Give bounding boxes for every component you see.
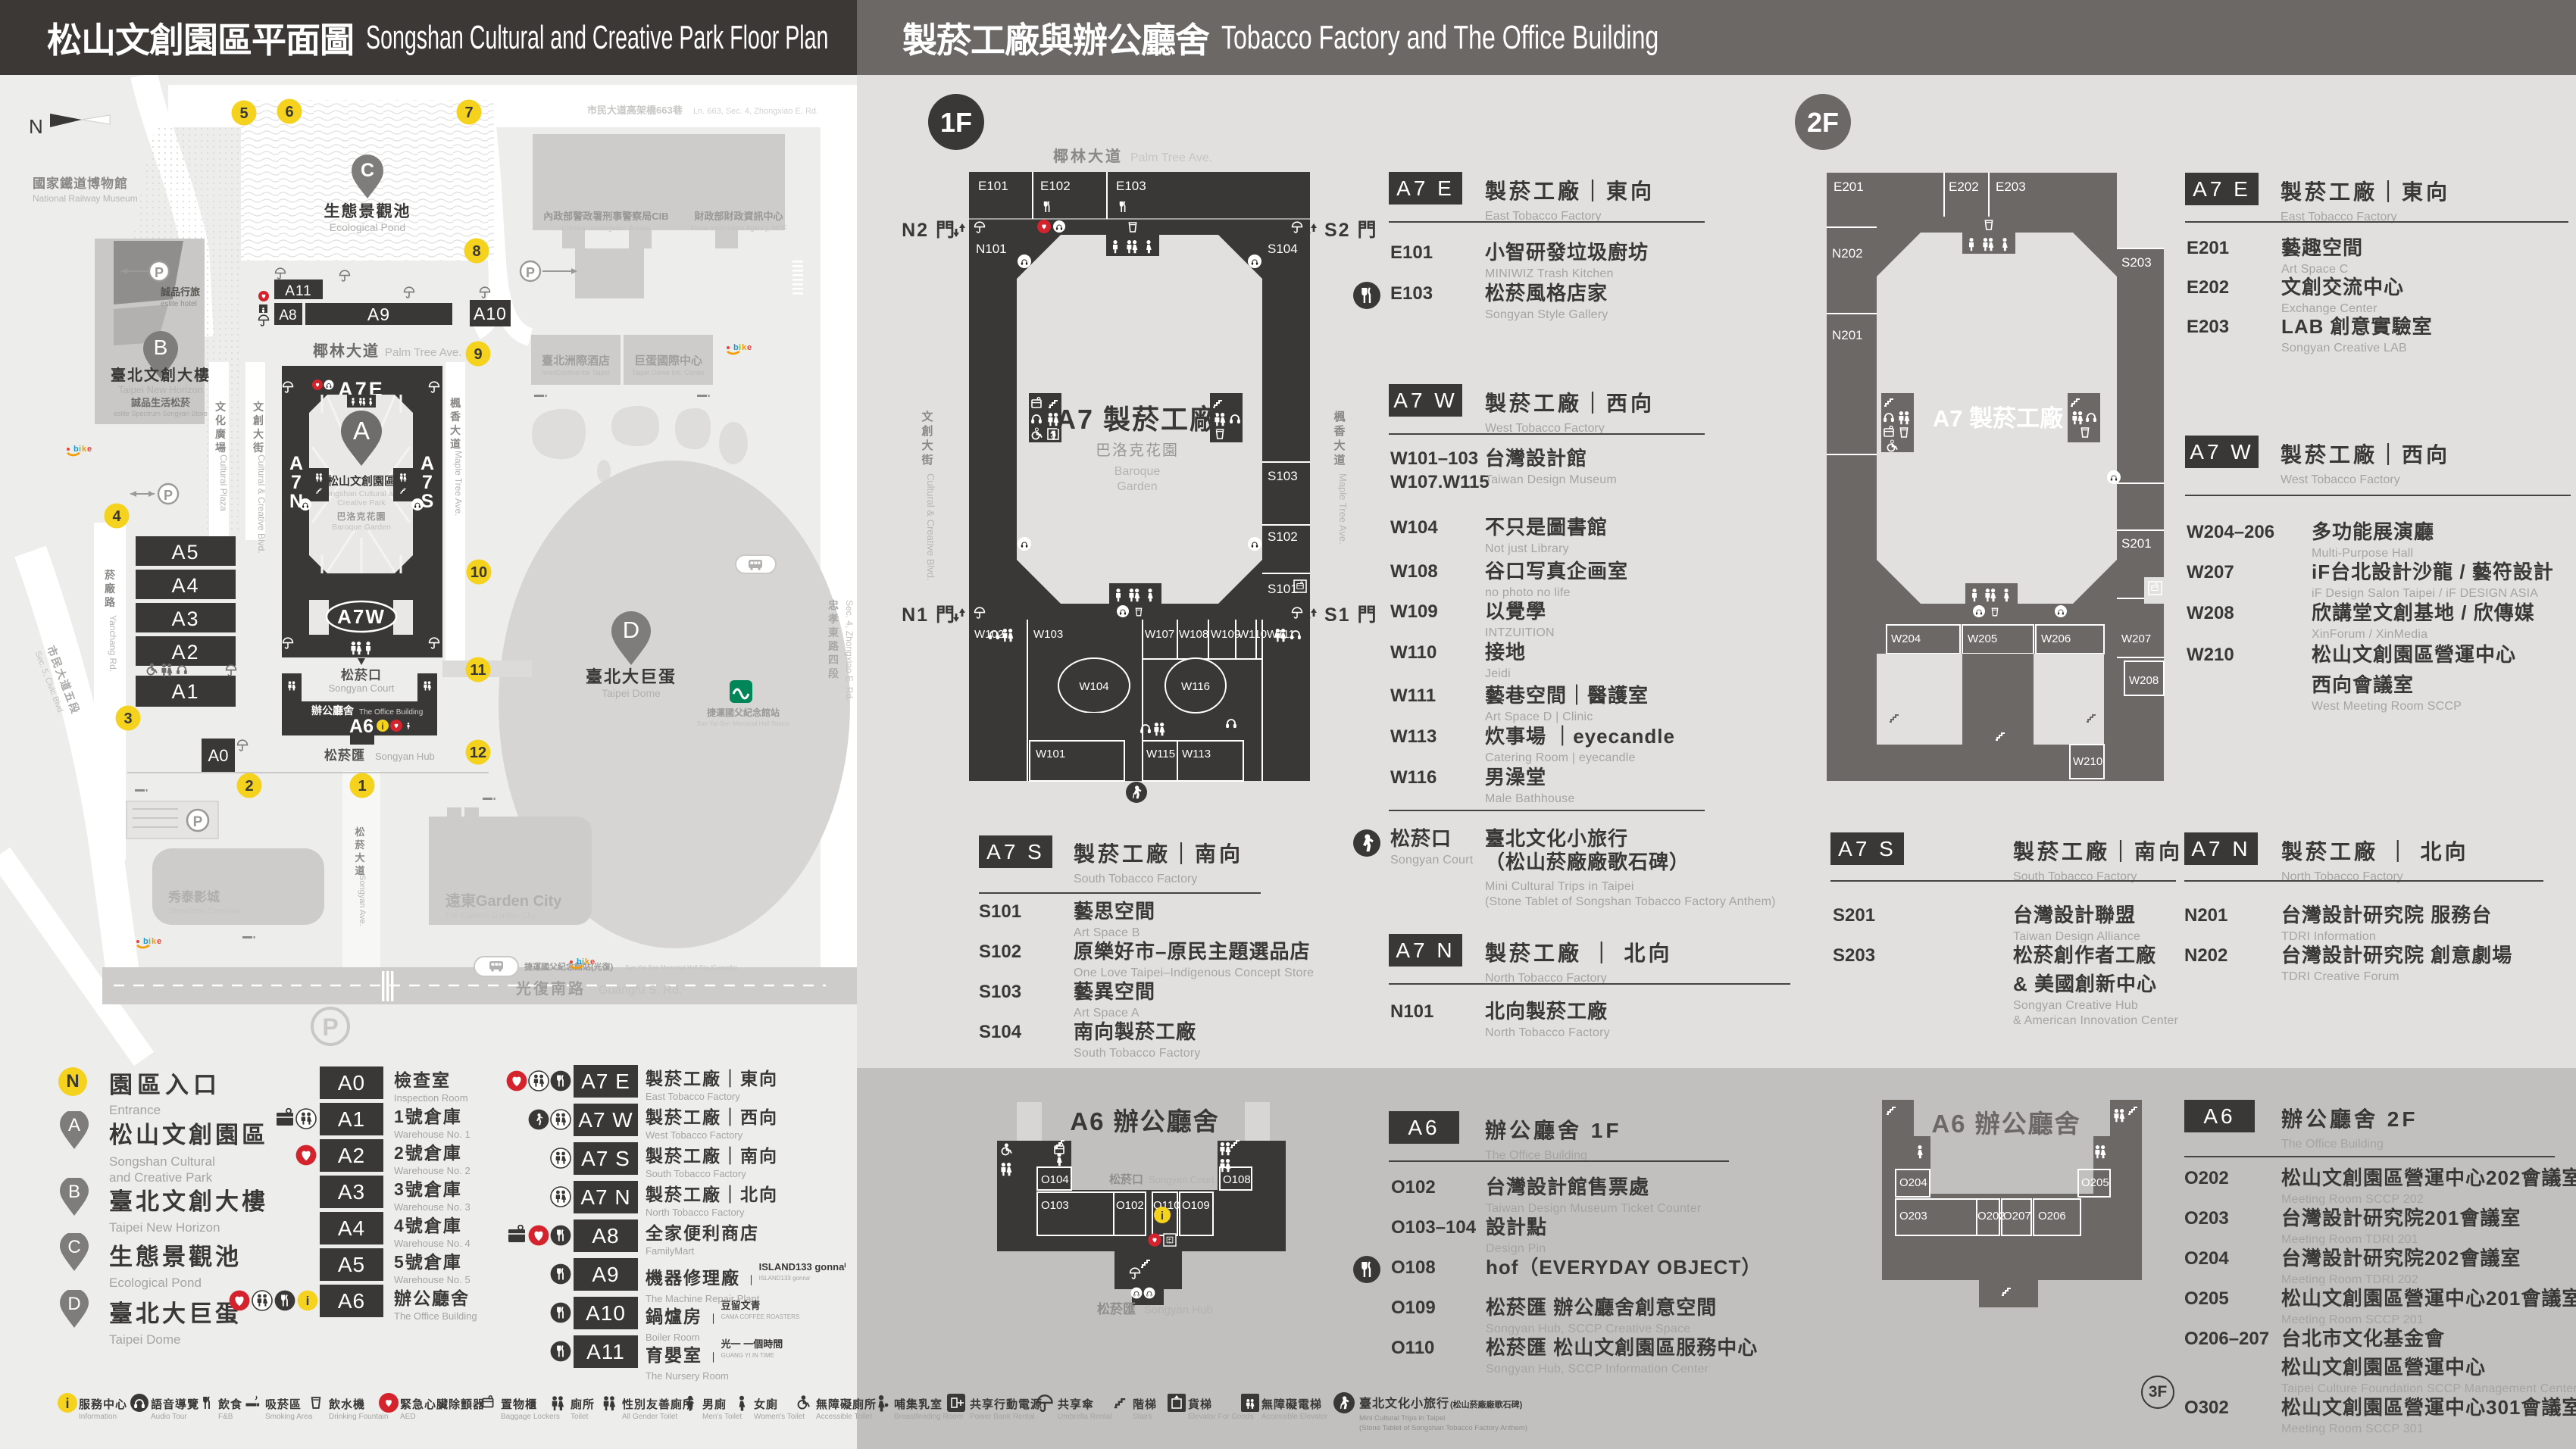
- svg-text:O206: O206: [2038, 1210, 2066, 1223]
- svg-text:b: b: [143, 937, 148, 946]
- svg-text:9: 9: [474, 346, 482, 363]
- svg-text:Songyan Hub: Songyan Hub: [1144, 1304, 1213, 1316]
- svg-text:i: i: [79, 445, 81, 454]
- svg-text:Songyan Court: Songyan Court: [1149, 1174, 1215, 1185]
- svg-text:孝: 孝: [827, 613, 839, 625]
- svg-text:Creative Park: Creative Park: [337, 498, 386, 507]
- svg-text:置物櫃: 置物櫃: [501, 1397, 537, 1411]
- svg-text:菸: 菸: [355, 839, 365, 851]
- svg-text:i: i: [65, 1396, 69, 1411]
- svg-text:E101: E101: [978, 179, 1008, 193]
- svg-text:Baroque Garden: Baroque Garden: [332, 523, 391, 532]
- svg-text:W101: W101: [1036, 748, 1065, 760]
- svg-text:(松山菸廠廠歌石碑): (松山菸廠廠歌石碑): [1450, 1399, 1523, 1410]
- svg-text:Accessible Elevator: Accessible Elevator: [1261, 1413, 1328, 1421]
- svg-text:Sun Yat-Sen Memorial Hall Sta.: Sun Yat-Sen Memorial Hall Sta.(Guangfu): [625, 964, 738, 971]
- svg-text:Drinking Fountain: Drinking Fountain: [329, 1413, 388, 1421]
- svg-text:A4: A4: [171, 574, 199, 597]
- svg-text:S103: S103: [1268, 469, 1298, 483]
- svg-text:B: B: [154, 336, 168, 359]
- svg-text:S2 門: S2 門: [1324, 220, 1378, 241]
- svg-text:Men's Toilet: Men's Toilet: [702, 1413, 742, 1421]
- svg-text:A2: A2: [171, 641, 199, 664]
- svg-text:Elevator For Goods: Elevator For Goods: [1188, 1413, 1254, 1421]
- svg-text:S104: S104: [1268, 242, 1298, 256]
- svg-text:Maple Tree Ave.: Maple Tree Ave.: [1337, 473, 1349, 545]
- svg-text:共享行動電源: 共享行動電源: [970, 1397, 1043, 1411]
- svg-text:i: i: [148, 937, 151, 946]
- svg-text:臺北洲際酒店: 臺北洲際酒店: [542, 354, 610, 367]
- svg-text:誠品行旅: 誠品行旅: [161, 286, 200, 298]
- svg-text:3: 3: [123, 710, 132, 727]
- svg-text:A: A: [289, 453, 303, 474]
- svg-text:Umbrella Rental: Umbrella Rental: [1058, 1413, 1112, 1421]
- svg-text:A6 辦公廳舍: A6 辦公廳舍: [1931, 1110, 2080, 1138]
- svg-text:大: 大: [921, 439, 933, 452]
- svg-text:8: 8: [472, 243, 480, 260]
- svg-text:楓: 楓: [450, 397, 461, 409]
- svg-text:E201: E201: [1834, 180, 1864, 194]
- svg-text:W115: W115: [1146, 748, 1175, 760]
- svg-text:A7W: A7W: [337, 605, 386, 628]
- svg-text:5: 5: [239, 105, 248, 122]
- svg-text:P: P: [164, 488, 173, 503]
- svg-text:N201: N201: [1832, 328, 1863, 342]
- svg-text:大: 大: [253, 428, 264, 440]
- svg-text:大: 大: [355, 852, 364, 863]
- svg-text:i: i: [306, 1294, 310, 1308]
- svg-text:N: N: [29, 115, 43, 138]
- svg-text:S201: S201: [2121, 536, 2152, 551]
- svg-text:E103: E103: [1116, 179, 1146, 193]
- svg-text:文: 文: [215, 401, 227, 413]
- svg-text:W210: W210: [2073, 755, 2102, 768]
- svg-text:12: 12: [470, 745, 486, 761]
- svg-text:A3: A3: [171, 607, 199, 630]
- svg-text:辦公廳舍: 辦公廳舍: [311, 704, 355, 717]
- svg-text:W107: W107: [1145, 628, 1174, 641]
- svg-text:Taipei New Horizon: Taipei New Horizon: [118, 384, 203, 395]
- svg-text:市民大道高架橋663巷: 市民大道高架橋663巷: [587, 105, 683, 116]
- svg-text:AED: AED: [400, 1413, 416, 1421]
- svg-text:Showtime Cinemas: Showtime Cinemas: [168, 907, 240, 916]
- svg-text:N1 門: N1 門: [902, 604, 956, 626]
- svg-text:O102: O102: [1116, 1199, 1144, 1212]
- svg-text:InterContinental Taipei: InterContinental Taipei: [542, 369, 609, 376]
- svg-text:東: 東: [828, 626, 839, 639]
- svg-text:Yanchang Rd.: Yanchang Rd.: [108, 615, 118, 672]
- svg-text:文: 文: [921, 410, 933, 423]
- svg-text:路: 路: [105, 596, 116, 608]
- svg-text:椰林大道: 椰林大道: [313, 342, 380, 360]
- svg-text:A7 製菸工廠: A7 製菸工廠: [1933, 405, 2063, 432]
- svg-text:Palm Tree Ave.: Palm Tree Ave.: [385, 346, 461, 359]
- svg-text:Toilet: Toilet: [571, 1413, 589, 1421]
- svg-text:楓: 楓: [1333, 410, 1346, 423]
- svg-text:Songyan Court: Songyan Court: [329, 682, 395, 694]
- svg-text:O203: O203: [1899, 1210, 1927, 1223]
- svg-text:文: 文: [253, 401, 264, 413]
- svg-text:女廁: 女廁: [754, 1397, 778, 1411]
- svg-text:A: A: [68, 1115, 80, 1135]
- svg-text:2: 2: [245, 778, 253, 795]
- svg-text:遠東Garden City: 遠東Garden City: [445, 892, 562, 910]
- svg-text:O205: O205: [2081, 1176, 2109, 1189]
- svg-text:捷運國父紀念館站: 捷運國父紀念館站: [707, 707, 780, 718]
- svg-text:路: 路: [828, 640, 839, 652]
- svg-text:4: 4: [112, 508, 121, 525]
- svg-text:(Stone Tablet of Songshan Toba: (Stone Tablet of Songshan Tobacco Factor…: [1359, 1424, 1527, 1432]
- svg-text:P: P: [193, 814, 203, 830]
- svg-text:Smoking Area: Smoking Area: [265, 1413, 313, 1421]
- svg-text:7: 7: [464, 105, 473, 121]
- svg-text:A: A: [420, 453, 434, 474]
- svg-text:W104: W104: [1079, 680, 1108, 693]
- svg-text:巨蛋國際中心: 巨蛋國際中心: [634, 354, 702, 367]
- svg-text:W206: W206: [2041, 632, 2071, 645]
- svg-text:飲食: 飲食: [217, 1397, 242, 1411]
- svg-text:National Railway Museum: National Railway Museum: [33, 193, 138, 204]
- svg-text:道: 道: [1333, 453, 1345, 467]
- svg-text:W103: W103: [1033, 628, 1063, 641]
- svg-text:S203: S203: [2121, 255, 2152, 270]
- svg-text:1F: 1F: [940, 107, 972, 138]
- svg-text:創: 創: [921, 424, 933, 438]
- svg-text:松山文創園區: 松山文創園區: [327, 474, 395, 488]
- svg-text:Palm Tree Ave.: Palm Tree Ave.: [1130, 151, 1212, 164]
- svg-text:Women's Toilet: Women's Toilet: [754, 1413, 805, 1421]
- svg-text:All Gender Toilet: All Gender Toilet: [622, 1413, 677, 1421]
- svg-text:光復南路: 光復南路: [515, 979, 586, 998]
- svg-text:P: P: [322, 1013, 338, 1041]
- svg-text:內政部警政署刑事警察局CIB: 內政部警政署刑事警察局CIB: [543, 211, 668, 222]
- svg-text:松菸口: 松菸口: [1109, 1173, 1143, 1186]
- svg-text:男廁: 男廁: [702, 1397, 727, 1411]
- svg-text:A1: A1: [171, 680, 199, 703]
- svg-text:松: 松: [355, 826, 364, 838]
- svg-text:巴洛克花園: 巴洛克花園: [1096, 442, 1179, 459]
- svg-text:b: b: [733, 343, 739, 352]
- svg-text:階梯: 階梯: [1133, 1397, 1157, 1411]
- svg-text:Songyan Ave.: Songyan Ave.: [358, 875, 367, 926]
- svg-text:7: 7: [291, 472, 302, 493]
- svg-text:2F: 2F: [1807, 107, 1839, 138]
- svg-text:忠: 忠: [828, 599, 839, 611]
- svg-text:O104: O104: [1041, 1173, 1069, 1186]
- svg-text:W108: W108: [1179, 628, 1208, 641]
- svg-text:Songshan Cultural and: Songshan Cultural and: [321, 489, 402, 498]
- svg-text:財政部財政資訊中心: 財政部財政資訊中心: [693, 211, 783, 222]
- svg-text:eslite hotel: eslite hotel: [161, 300, 197, 308]
- svg-text:緊急心臟除顫器: 緊急心臟除顫器: [400, 1397, 485, 1411]
- svg-text:Power Bank Rental: Power Bank Rental: [970, 1413, 1035, 1421]
- svg-text:A10: A10: [474, 304, 507, 323]
- svg-text:四: 四: [828, 654, 839, 666]
- svg-text:O207: O207: [2003, 1210, 2031, 1223]
- svg-text:Baggage Lockers: Baggage Lockers: [501, 1413, 560, 1421]
- svg-text:F&B: F&B: [218, 1413, 233, 1421]
- svg-text:S1 門: S1 門: [1324, 604, 1378, 626]
- svg-text:6: 6: [285, 104, 293, 120]
- svg-text:廁所: 廁所: [571, 1397, 595, 1411]
- svg-text:街: 街: [252, 442, 264, 454]
- svg-text:10: 10: [470, 564, 487, 581]
- svg-text:O204: O204: [1899, 1176, 1927, 1189]
- svg-text:大: 大: [1333, 439, 1345, 452]
- svg-text:W110: W110: [1238, 628, 1267, 641]
- svg-text:香: 香: [1333, 424, 1345, 438]
- svg-text:巴洛克花園: 巴洛克花園: [336, 511, 386, 522]
- svg-text:D: D: [623, 617, 639, 643]
- svg-text:Fiscal Information Agency, MOF: Fiscal Information Agency, MOF: [690, 224, 787, 232]
- svg-text:共享傘: 共享傘: [1058, 1397, 1094, 1411]
- svg-text:Taipei Dome: Taipei Dome: [602, 687, 661, 699]
- svg-text:W207: W207: [2121, 632, 2151, 645]
- svg-text:W109: W109: [1211, 628, 1240, 641]
- svg-text:P: P: [526, 265, 535, 280]
- svg-text:Audio Tour: Audio Tour: [151, 1413, 187, 1421]
- svg-text:場: 場: [215, 442, 226, 454]
- svg-text:菸: 菸: [105, 569, 116, 581]
- svg-text:e: e: [747, 343, 752, 352]
- svg-text:N2 門: N2 門: [902, 220, 956, 241]
- svg-text:S: S: [421, 491, 434, 512]
- svg-text:Baroque: Baroque: [1114, 465, 1161, 478]
- svg-text:貨梯: 貨梯: [1188, 1397, 1212, 1411]
- svg-text:臺北大巨蛋: 臺北大巨蛋: [586, 667, 677, 686]
- svg-text:Maple Tree Ave.: Maple Tree Ave.: [453, 451, 464, 517]
- svg-text:段: 段: [828, 667, 839, 679]
- svg-text:松菸匯: 松菸匯: [324, 748, 365, 763]
- svg-text:廠: 廠: [105, 582, 116, 595]
- svg-text:k: k: [585, 957, 590, 967]
- svg-text:E102: E102: [1040, 179, 1071, 193]
- svg-text:A8: A8: [279, 308, 296, 323]
- svg-text:A6 辦公廳舍: A6 辦公廳舍: [1070, 1107, 1219, 1135]
- svg-text:E203: E203: [1996, 180, 2026, 194]
- svg-text:k: k: [742, 343, 747, 352]
- svg-text:W208: W208: [2129, 674, 2159, 687]
- svg-text:A7 製菸工廠: A7 製菸工廠: [1056, 404, 1218, 435]
- svg-text:W113: W113: [1182, 748, 1211, 760]
- svg-text:服務中心: 服務中心: [79, 1397, 127, 1411]
- svg-text:香: 香: [449, 411, 461, 423]
- svg-text:性別友善廁所: 性別友善廁所: [622, 1397, 695, 1411]
- svg-text:N101: N101: [976, 242, 1007, 256]
- svg-text:Garden: Garden: [1117, 480, 1157, 493]
- svg-text:1: 1: [358, 778, 366, 795]
- svg-text:A6: A6: [349, 716, 374, 737]
- svg-text:N202: N202: [1832, 246, 1863, 261]
- svg-text:Ln. 663, Sec. 4, Zhongxiao E.: Ln. 663, Sec. 4, Zhongxiao E. Rd.: [693, 107, 818, 116]
- svg-text:臺北文創大樓: 臺北文創大樓: [111, 366, 211, 384]
- svg-text:Sun Yat-Sen Memorial Hall Stat: Sun Yat-Sen Memorial Hall Station: [697, 720, 790, 727]
- svg-text:O103: O103: [1041, 1199, 1069, 1212]
- svg-text:Cultural Plaza: Cultural Plaza: [218, 454, 229, 511]
- svg-text:P: P: [155, 265, 164, 280]
- svg-text:哺集乳室: 哺集乳室: [894, 1397, 943, 1411]
- svg-text:Far Eastern Garden City: Far Eastern Garden City: [445, 911, 536, 920]
- svg-text:D: D: [67, 1294, 80, 1314]
- svg-text:Guangfu S. Rd.: Guangfu S. Rd.: [599, 984, 682, 997]
- svg-text:Accessible Toilet: Accessible Toilet: [816, 1413, 872, 1421]
- svg-text:Breastfeeding Room: Breastfeeding Room: [894, 1413, 963, 1421]
- svg-text:誠品生活松菸: 誠品生活松菸: [131, 397, 191, 408]
- svg-text:大: 大: [450, 424, 461, 436]
- svg-text:A0: A0: [208, 746, 229, 765]
- svg-text:飲水機: 飲水機: [328, 1397, 365, 1411]
- svg-text:B: B: [68, 1182, 80, 1202]
- svg-text:7: 7: [422, 472, 433, 493]
- svg-text:Information: Information: [79, 1413, 117, 1421]
- svg-text:b: b: [73, 445, 79, 454]
- svg-text:椰林大道: 椰林大道: [1053, 147, 1123, 165]
- svg-text:無障礙電梯: 無障礙電梯: [1261, 1397, 1322, 1411]
- svg-text:Cultural & Creative Blvd.: Cultural & Creative Blvd.: [925, 473, 936, 581]
- svg-text:W116: W116: [1181, 680, 1210, 693]
- svg-text:W111: W111: [1267, 628, 1295, 641]
- svg-text:Songyan Hub: Songyan Hub: [375, 751, 435, 762]
- svg-text:i: i: [739, 343, 741, 352]
- svg-text:道: 道: [450, 438, 461, 450]
- svg-text:O108: O108: [1223, 1173, 1251, 1186]
- svg-text:Cultural & Creative Blvd.: Cultural & Creative Blvd.: [256, 454, 267, 554]
- svg-text:e: e: [87, 445, 92, 454]
- svg-text:e: e: [590, 957, 595, 967]
- svg-text:松菸匯: 松菸匯: [1097, 1301, 1136, 1316]
- svg-text:Sec. 4, Zhongxiao E. Rd.: Sec. 4, Zhongxiao E. Rd.: [844, 600, 855, 701]
- svg-text:Ecological Pond: Ecological Pond: [330, 221, 405, 233]
- svg-text:S101: S101: [1268, 582, 1298, 596]
- svg-text:語音導覽: 語音導覽: [151, 1397, 199, 1411]
- svg-text:Taipei Dome Intl. Center: Taipei Dome Intl. Center: [632, 369, 705, 376]
- svg-text:E202: E202: [1949, 180, 1979, 194]
- svg-text:國家鐵道博物館: 國家鐵道博物館: [33, 176, 128, 191]
- svg-text:b: b: [577, 957, 582, 967]
- svg-text:k: k: [152, 937, 157, 946]
- svg-text:A11: A11: [285, 283, 311, 299]
- svg-text:O202: O202: [1977, 1210, 2005, 1223]
- svg-text:廣: 廣: [215, 428, 226, 440]
- svg-text:Stairs: Stairs: [1133, 1413, 1152, 1421]
- svg-text:A5: A5: [171, 541, 199, 564]
- svg-text:W204: W204: [1891, 632, 1921, 645]
- svg-text:i: i: [381, 721, 383, 732]
- svg-text:C: C: [67, 1237, 80, 1257]
- svg-text:生態景觀池: 生態景觀池: [324, 202, 411, 220]
- svg-text:O109: O109: [1182, 1199, 1210, 1212]
- svg-text:e: e: [157, 937, 161, 946]
- svg-text:吸菸區: 吸菸區: [265, 1397, 302, 1411]
- svg-text:11: 11: [470, 662, 486, 679]
- svg-text:A: A: [353, 417, 370, 445]
- svg-text:A9: A9: [367, 304, 390, 324]
- svg-text:化: 化: [215, 414, 226, 426]
- svg-text:Mini Cultural Trips in Taipei: Mini Cultural Trips in Taipei: [1359, 1414, 1445, 1422]
- svg-text:捷運國父紀念館站(光復): 捷運國父紀念館站(光復): [524, 961, 614, 972]
- svg-text:W205: W205: [1968, 632, 1997, 645]
- svg-text:S102: S102: [1268, 529, 1298, 544]
- svg-text:秀泰影城: 秀泰影城: [167, 889, 220, 904]
- svg-text:C: C: [361, 160, 374, 181]
- svg-text:i: i: [582, 957, 584, 967]
- svg-text:eslite Spectrum Songyan Store: eslite Spectrum Songyan Store: [114, 410, 208, 417]
- svg-text:街: 街: [921, 453, 933, 467]
- svg-text:Criminal Investigation Bureau: Criminal Investigation Bureau: [561, 224, 651, 232]
- svg-text:松菸口: 松菸口: [341, 667, 382, 682]
- svg-text:i: i: [1161, 1210, 1164, 1223]
- svg-text:k: k: [82, 445, 87, 454]
- svg-text:創: 創: [252, 414, 264, 426]
- svg-text:臺北文化小旅行: 臺北文化小旅行: [1359, 1396, 1449, 1410]
- svg-text:無障礙廁所: 無障礙廁所: [816, 1397, 877, 1411]
